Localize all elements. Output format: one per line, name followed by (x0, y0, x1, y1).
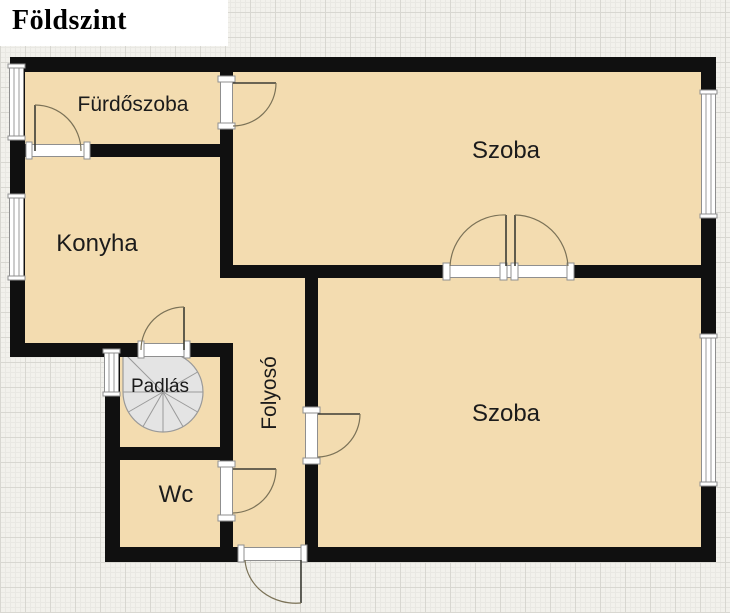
page-title: Földszint (12, 5, 127, 37)
room-label-furdoszoba: Fürdőszoba (78, 93, 189, 116)
rooms-layer (18, 64, 708, 555)
room-label-wc: Wc (159, 481, 194, 508)
room-label-szoba-also: Szoba (472, 400, 541, 427)
floor-plan-page: Fürdőszoba Szoba Konyha Padlás Folyosó W… (0, 0, 730, 613)
room-szoba-felso (226, 64, 708, 272)
window-padlas-left (103, 349, 120, 396)
window-szoba-also-right (700, 334, 717, 486)
window-furdoszoba-left (8, 64, 25, 140)
room-label-folyoso: Folyosó (258, 356, 281, 430)
floor-plan-drawing: Fürdőszoba Szoba Konyha Padlás Folyosó W… (0, 0, 730, 613)
room-label-konyha: Konyha (56, 230, 138, 257)
window-szoba-felso-right (700, 90, 717, 218)
room-label-szoba-felso: Szoba (472, 137, 541, 164)
window-konyha-left (8, 194, 25, 280)
entrance-door (238, 545, 307, 603)
room-label-padlas: Padlás (131, 376, 189, 397)
